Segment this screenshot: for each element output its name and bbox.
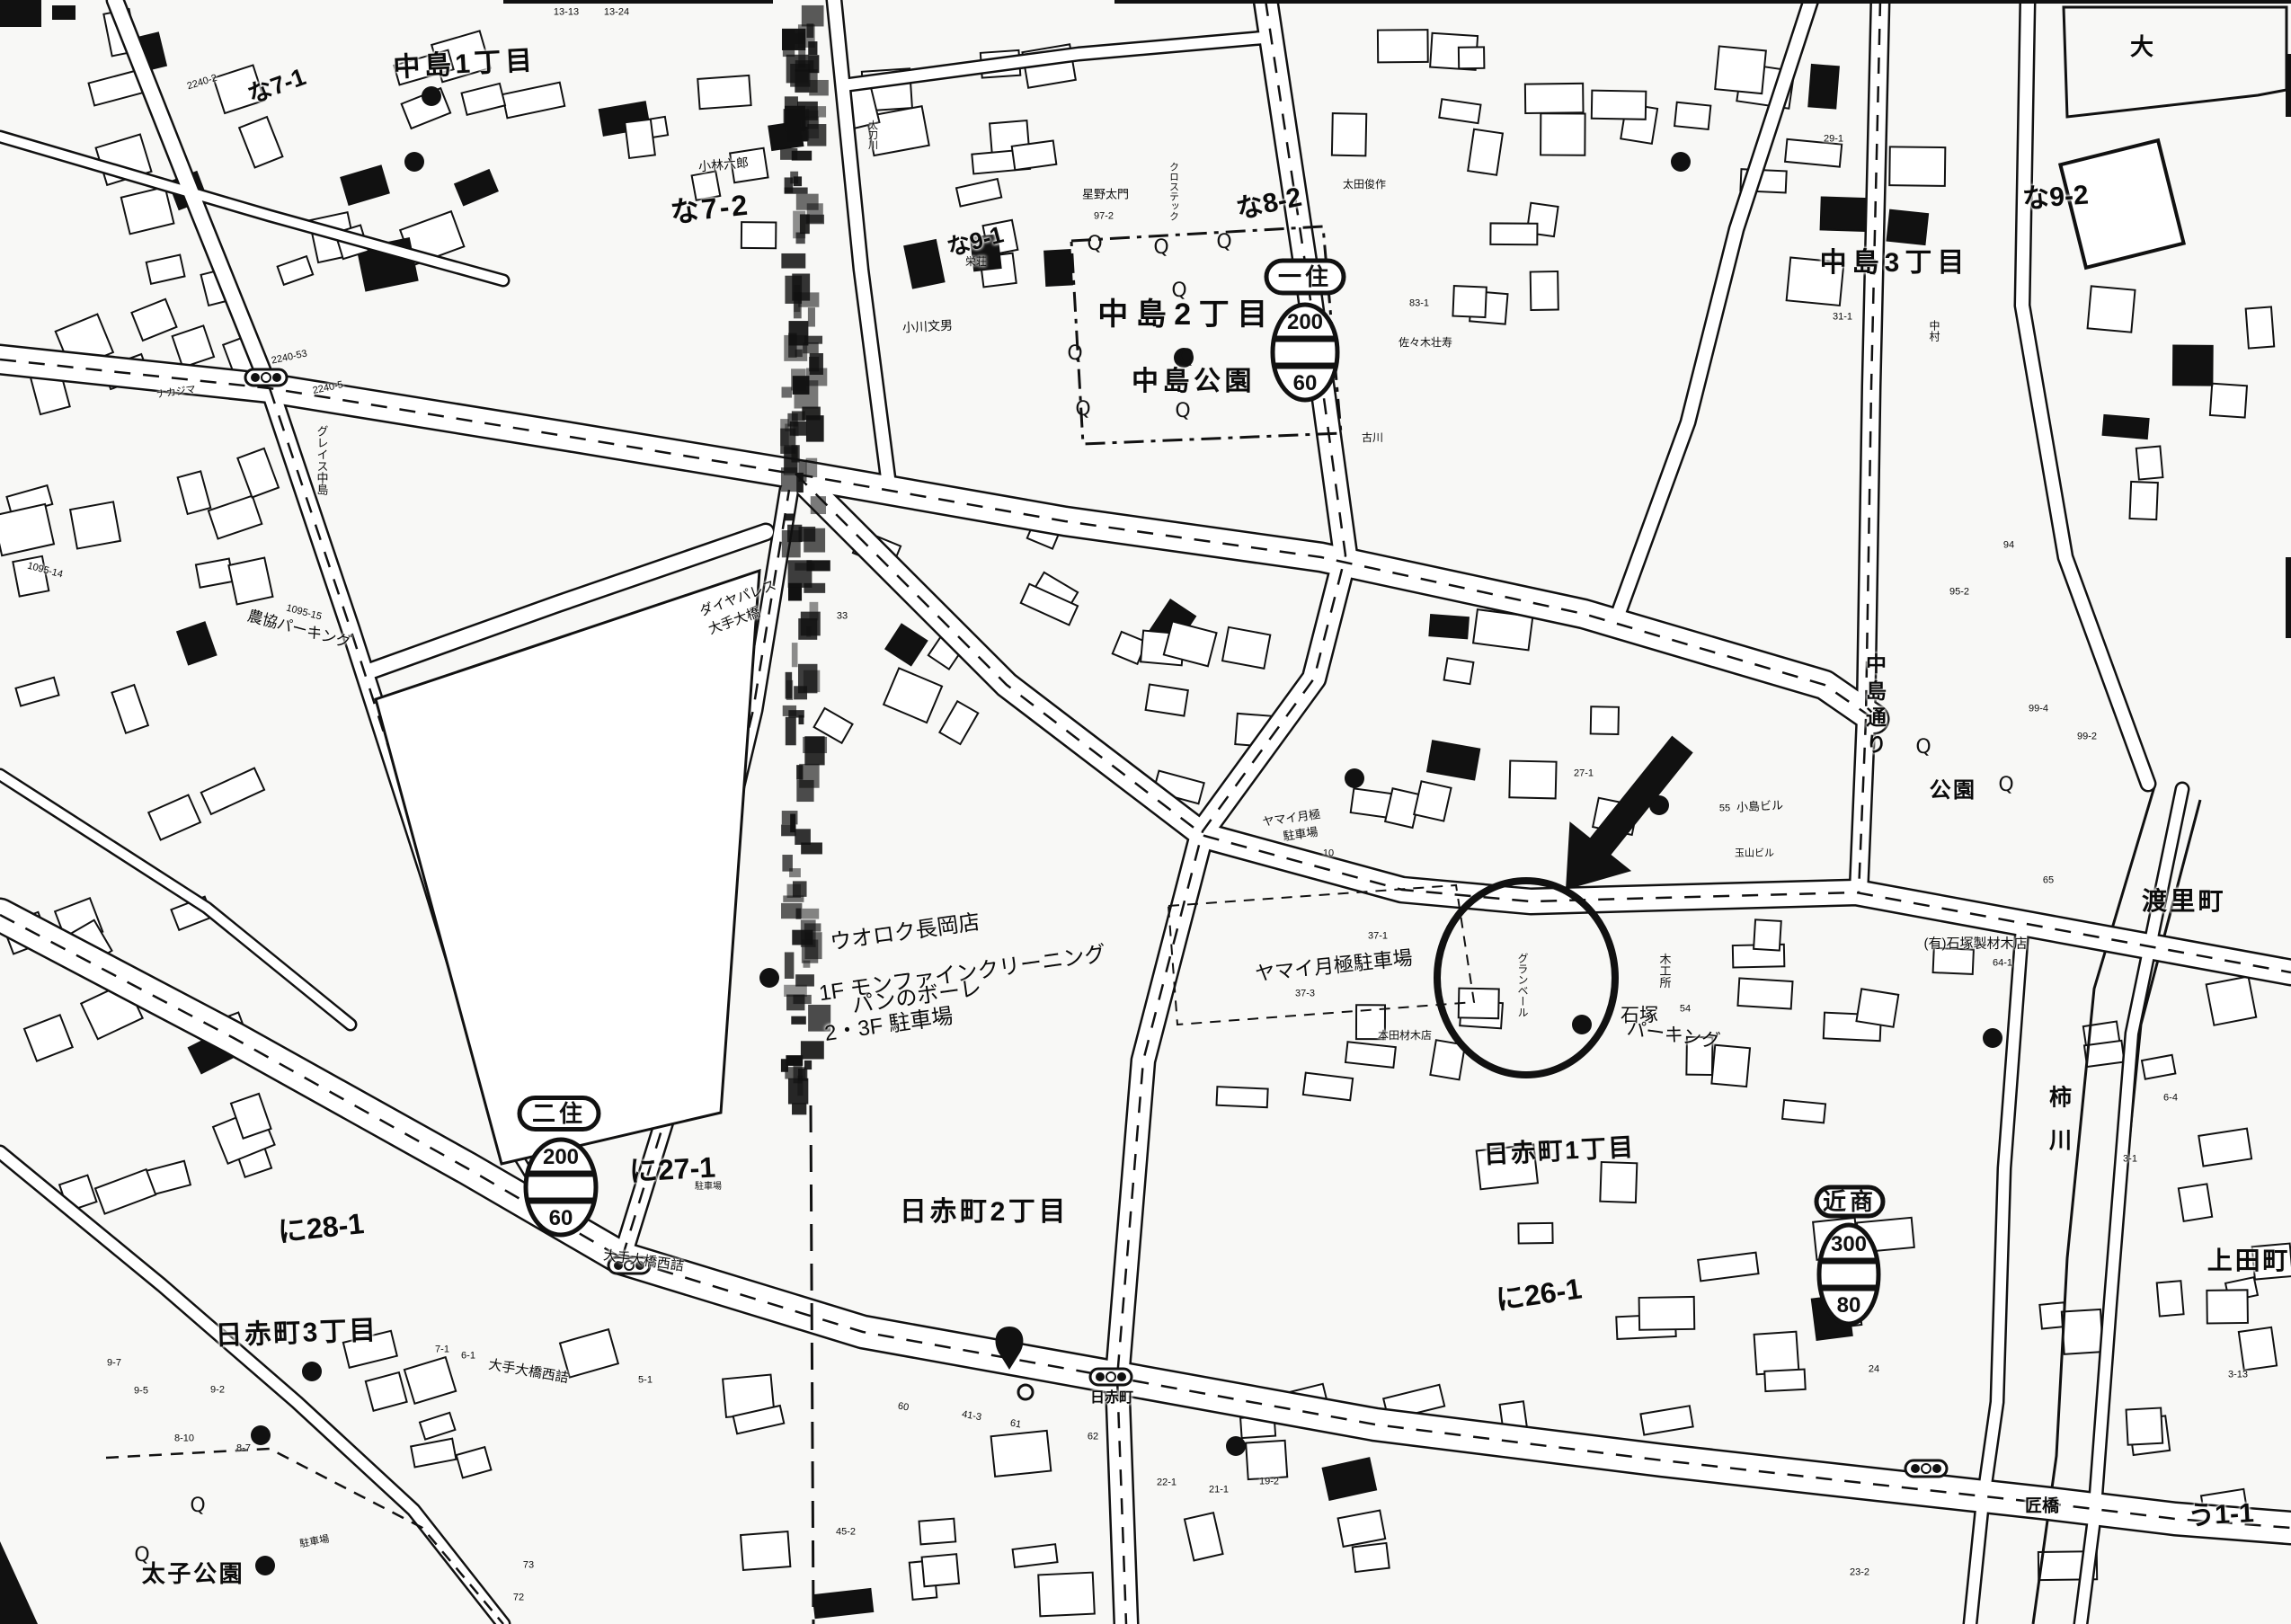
scan-fold-speckle (786, 672, 793, 699)
scan-fold-speckle (783, 895, 804, 901)
poi-dot-symbol (1226, 1436, 1246, 1456)
scan-corner-blob (0, 1541, 38, 1624)
signal-part (251, 373, 260, 382)
building-outline (1592, 91, 1647, 120)
scan-fold-speckle (803, 737, 827, 753)
building-outline (131, 299, 176, 341)
building-outline (1414, 781, 1451, 821)
building-outline (209, 496, 262, 539)
signal-part (635, 1261, 644, 1270)
scan-fold-speckle (790, 422, 807, 436)
building-outline (1889, 146, 1945, 186)
building-outline (1856, 989, 1898, 1026)
building-outline (15, 678, 58, 706)
scan-fold-speckle (796, 780, 813, 802)
scan-fold-speckle (784, 447, 798, 475)
scan-fold-speckle (782, 387, 793, 398)
scan-fold-speckle (801, 1041, 824, 1059)
scanned-city-map: QQQQQQQQQQQQ一住20060二住20060近商30080 中島1丁目な… (0, 0, 2291, 1624)
building-outline (1600, 1162, 1637, 1202)
building-outline (1674, 102, 1710, 129)
building-outline (2210, 384, 2247, 418)
tree-symbol: Q (1075, 398, 1090, 421)
poi-dot-symbol (1572, 1015, 1592, 1034)
scan-fold-speckle (791, 1016, 806, 1025)
building-outline (741, 1531, 790, 1570)
building-outline (411, 1439, 456, 1468)
building-outline (177, 622, 216, 664)
tree-symbol: Q (134, 1544, 149, 1566)
building-outline (2173, 345, 2213, 385)
scan-fold-speckle (811, 496, 826, 514)
scan-fold-speckle (786, 995, 804, 1011)
scan-fold-speckle (784, 985, 807, 997)
building-outline (560, 1329, 618, 1377)
building-outline (173, 325, 214, 367)
building-outline (2136, 446, 2163, 479)
poi-dot-symbol (759, 968, 779, 988)
building-outline (1933, 948, 1974, 974)
signal-part (1932, 1464, 1941, 1473)
building-outline (2207, 976, 2257, 1025)
scan-fold-speckle (806, 458, 818, 477)
building-outline (2129, 482, 2157, 519)
scan-fold-speckle (804, 336, 822, 344)
building-outline (1013, 1544, 1058, 1567)
route-badge-bottom: 60 (1293, 371, 1318, 395)
building-outline (692, 171, 721, 200)
building-outline (341, 165, 388, 204)
poi-dot-symbol (255, 1556, 275, 1575)
building-outline (2088, 286, 2136, 332)
building-outline (1639, 1297, 1695, 1330)
building-outline (1525, 84, 1584, 113)
tree-symbol: Q (1175, 400, 1190, 422)
route-badge-top: 300 (1831, 1232, 1867, 1256)
scan-fold-speckle (804, 932, 821, 959)
scan-fold-speckle (792, 1103, 806, 1114)
building-outline (1711, 1045, 1750, 1087)
zoning-badge-text: 二住 (532, 1100, 586, 1127)
zoning-badge-text: 一住 (1278, 263, 1332, 290)
building-outline (111, 685, 147, 733)
building-outline (148, 795, 200, 840)
building-outline (1698, 1253, 1758, 1282)
scan-fold-speckle (806, 626, 811, 637)
scan-fold-speckle (799, 715, 804, 724)
scan-fold-speckle (806, 415, 824, 441)
building-outline (13, 556, 49, 597)
scan-fold-speckle (804, 1060, 812, 1069)
page-edge-artifact (1114, 0, 2291, 4)
route-badge-top: 200 (1287, 310, 1323, 334)
scan-corner-blob (52, 5, 75, 20)
building-outline (1591, 706, 1619, 734)
tree-symbol: Q (1216, 231, 1231, 253)
building-outline (904, 240, 944, 288)
scan-fold-line (811, 1105, 813, 1624)
building-outline (1353, 1543, 1390, 1572)
building-outline (919, 1519, 956, 1545)
scan-fold-speckle (792, 643, 798, 667)
building-outline (1490, 223, 1537, 244)
building-outline (1038, 1573, 1095, 1617)
poi-dot-symbol (1345, 768, 1364, 788)
building-outline (121, 187, 174, 234)
building-outline (1808, 65, 1839, 109)
scan-fold-speckle (793, 881, 807, 896)
scan-fold-speckle (802, 909, 819, 919)
building-outline (147, 255, 185, 284)
building-outline (1764, 1370, 1805, 1391)
building-outline (625, 120, 655, 158)
building-outline (201, 768, 264, 814)
building-outline (1686, 1037, 1712, 1075)
building-outline (196, 559, 234, 588)
scan-edge-artifact (2286, 557, 2291, 638)
scan-fold-speckle (794, 292, 802, 318)
zoning-badge-text: 近商 (1823, 1188, 1877, 1215)
tree-symbol: Q (1998, 774, 2013, 796)
tree-symbol: Q (1067, 342, 1082, 365)
building-outline (70, 501, 120, 548)
highlight-arrow-marker (1566, 736, 1693, 890)
poi-dot-symbol (302, 1362, 322, 1381)
road-fill-Q (2022, 0, 2148, 784)
building-outline (455, 170, 497, 205)
building-outline (2252, 1244, 2291, 1280)
building-outline (813, 1589, 874, 1618)
building-outline (2207, 1290, 2248, 1323)
scan-fold-speckle (781, 1059, 788, 1072)
scan-fold-speckle (786, 55, 809, 84)
scan-fold-speckle (803, 117, 819, 138)
building-outline (956, 179, 1001, 207)
signal-part (1911, 1464, 1920, 1473)
traffic-signal-symbol (245, 369, 287, 386)
scan-fold-speckle (795, 829, 811, 845)
scan-fold-speckle (808, 307, 815, 326)
building-outline (95, 1169, 155, 1213)
building-outline (1787, 257, 1844, 305)
scan-fold-speckle (784, 335, 807, 361)
tree-symbol: Q (1087, 233, 1102, 255)
scan-fold-speckle (802, 5, 824, 27)
building-outline (228, 558, 272, 605)
tree-symbol: Q (190, 1495, 205, 1517)
scan-fold-speckle (794, 1058, 803, 1083)
building-outline (1345, 1042, 1396, 1068)
building-outline (1452, 286, 1486, 317)
building-outline (1754, 1332, 1799, 1375)
scan-fold-speckle (792, 151, 812, 161)
scan-fold-speckle (795, 350, 803, 357)
scan-fold-speckle (796, 194, 819, 210)
tree-symbol: Q (1178, 346, 1194, 368)
scan-edge-artifact (2286, 54, 2291, 117)
tree-symbol: Q (1153, 236, 1168, 259)
scan-fold-speckle (808, 1005, 830, 1032)
poi-dot-symbol (251, 1425, 271, 1445)
building-outline (1887, 210, 1929, 244)
tree-symbol: Q (1915, 736, 1931, 759)
scan-fold-speckle (792, 411, 805, 421)
building-outline (1782, 1100, 1825, 1123)
traffic-signal-symbol (1905, 1460, 1947, 1477)
scan-fold-speckle (801, 842, 822, 854)
poi-dot-symbol (404, 152, 424, 172)
building-outline (2084, 1041, 2125, 1067)
map-linework-canvas: QQQQQQQQQQQQ一住20060二住20060近商30080 (0, 0, 2291, 1624)
building-outline (697, 75, 750, 109)
building-outline (1012, 140, 1057, 170)
building-outline (1217, 1087, 1268, 1107)
scan-fold-speckle (810, 353, 823, 375)
building-outline (2103, 415, 2149, 439)
building-outline (1518, 1223, 1552, 1244)
building-outline (1715, 46, 1766, 93)
building-outline (971, 235, 1001, 271)
scan-fold-speckle (788, 560, 813, 588)
building-outline (939, 701, 978, 744)
building-outline (1477, 1144, 1538, 1189)
building-outline (1146, 684, 1188, 715)
building-outline (237, 448, 279, 497)
building-outline (1246, 1441, 1287, 1479)
tree-symbol: Q (1171, 280, 1186, 302)
building-outline (2142, 1055, 2175, 1079)
scan-fold-speckle (810, 602, 819, 621)
scan-fold-speckle (780, 419, 788, 446)
building-outline (885, 625, 927, 666)
building-outline (1459, 47, 1485, 68)
building-outline (1303, 1073, 1353, 1101)
building-outline (1468, 129, 1503, 175)
page-edge-artifact (503, 0, 773, 4)
traffic-signal-symbol (1090, 1369, 1132, 1385)
building-outline (1044, 250, 1072, 286)
traffic-signal-symbol (608, 1257, 650, 1273)
scan-fold-speckle (790, 814, 795, 833)
building-outline (2127, 1407, 2163, 1444)
building-outline (2198, 1129, 2251, 1167)
scan-fold-speckle (800, 214, 810, 234)
signal-part (1117, 1372, 1126, 1381)
building-outline (278, 256, 314, 285)
uoroku-store-block (376, 571, 759, 1164)
scan-fold-speckle (798, 664, 817, 694)
building-outline (502, 83, 564, 119)
school-block (2064, 7, 2287, 117)
building-outline (404, 1357, 456, 1404)
building-outline (991, 1431, 1052, 1477)
building-outline (730, 148, 768, 182)
building-outline (1785, 139, 1842, 167)
building-outline (741, 222, 777, 248)
building-outline (178, 471, 211, 514)
scan-fold-speckle (783, 706, 796, 716)
building-outline (0, 504, 54, 555)
scan-corner-blob (0, 0, 41, 27)
building-outline (1640, 1406, 1692, 1434)
scan-fold-speckle (785, 952, 794, 979)
building-outline (1185, 1513, 1223, 1560)
building-outline (1754, 919, 1781, 950)
building-outline (1222, 627, 1270, 669)
building-outline (1429, 615, 1469, 638)
building-outline (420, 1413, 455, 1440)
building-outline (462, 84, 505, 115)
scan-fold-speckle (785, 513, 795, 520)
scan-fold-speckle (782, 855, 793, 872)
signal-part (272, 373, 281, 382)
route-badge-top: 200 (543, 1145, 579, 1169)
poi-dot-symbol (1983, 1028, 2002, 1048)
building-outline (2062, 1309, 2103, 1354)
building-outline (239, 117, 282, 167)
building-outline (366, 1372, 407, 1411)
poi-dot-symbol (422, 86, 441, 106)
scan-fold-speckle (785, 96, 798, 111)
small-ring-symbol (1018, 1385, 1033, 1399)
building-outline (213, 66, 264, 113)
building-outline (1541, 113, 1585, 155)
scan-fold-speckle (796, 473, 804, 493)
route-badge-bottom: 80 (1837, 1293, 1861, 1318)
building-outline (1531, 271, 1558, 310)
scan-fold-speckle (781, 253, 805, 269)
scan-fold-speckle (795, 974, 814, 986)
building-outline (1378, 30, 1428, 62)
route-badge-bottom: 60 (549, 1206, 573, 1230)
scan-fold-speckle (796, 909, 802, 919)
poi-dot-symbol (1671, 152, 1691, 172)
scan-fold-speckle (784, 109, 801, 126)
scan-fold-speckle (806, 23, 813, 38)
building-large (2060, 140, 2183, 268)
building-outline (1323, 1458, 1376, 1499)
building-outline (2157, 1281, 2184, 1316)
building-outline (457, 1447, 492, 1478)
building-outline (884, 668, 942, 723)
signal-part (614, 1261, 623, 1270)
signal-part (1096, 1372, 1105, 1381)
building-outline (2239, 1327, 2277, 1371)
building-outline (343, 1331, 397, 1368)
building-outline (2246, 306, 2275, 348)
building-outline (1509, 760, 1556, 798)
building-outline (1338, 1511, 1386, 1547)
building-outline (1332, 113, 1366, 155)
building-outline (1737, 978, 1792, 1008)
building-outline (2179, 1184, 2212, 1221)
scan-fold-speckle (786, 717, 796, 745)
parking-lot-boundary (1168, 885, 1474, 1025)
building-outline (922, 1554, 959, 1586)
scan-fold-speckle (785, 188, 808, 194)
scan-fold-speckle (787, 525, 802, 542)
building-outline (1439, 99, 1480, 123)
building-outline (1427, 741, 1479, 779)
building-outline (1444, 658, 1474, 684)
building-outline (24, 1015, 73, 1060)
scan-fold-speckle (783, 30, 795, 57)
scan-fold-speckle (796, 765, 803, 780)
scan-fold-speckle (804, 528, 825, 553)
